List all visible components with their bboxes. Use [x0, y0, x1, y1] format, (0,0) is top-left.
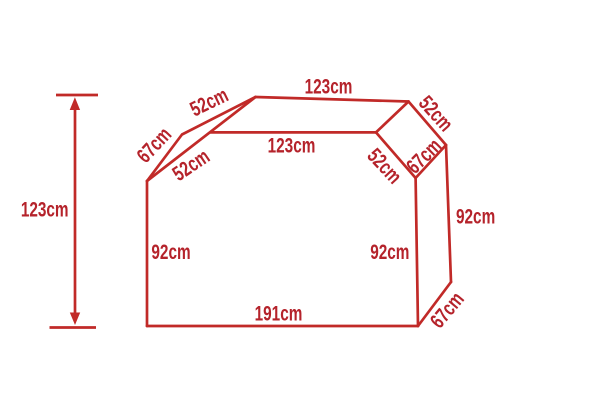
svg-text:52cm: 52cm [363, 143, 407, 188]
svg-text:92cm: 92cm [151, 240, 190, 264]
svg-text:67cm: 67cm [132, 122, 176, 167]
svg-text:123cm: 123cm [21, 197, 69, 221]
svg-text:92cm: 92cm [456, 204, 495, 228]
svg-text:67cm: 67cm [425, 287, 469, 332]
svg-text:123cm: 123cm [268, 133, 316, 157]
svg-text:52cm: 52cm [414, 91, 458, 136]
svg-text:92cm: 92cm [370, 240, 409, 264]
svg-text:67cm: 67cm [401, 133, 446, 178]
svg-text:52cm: 52cm [168, 144, 214, 186]
svg-text:123cm: 123cm [305, 74, 353, 98]
svg-text:191cm: 191cm [255, 301, 303, 325]
svg-text:52cm: 52cm [186, 82, 232, 121]
